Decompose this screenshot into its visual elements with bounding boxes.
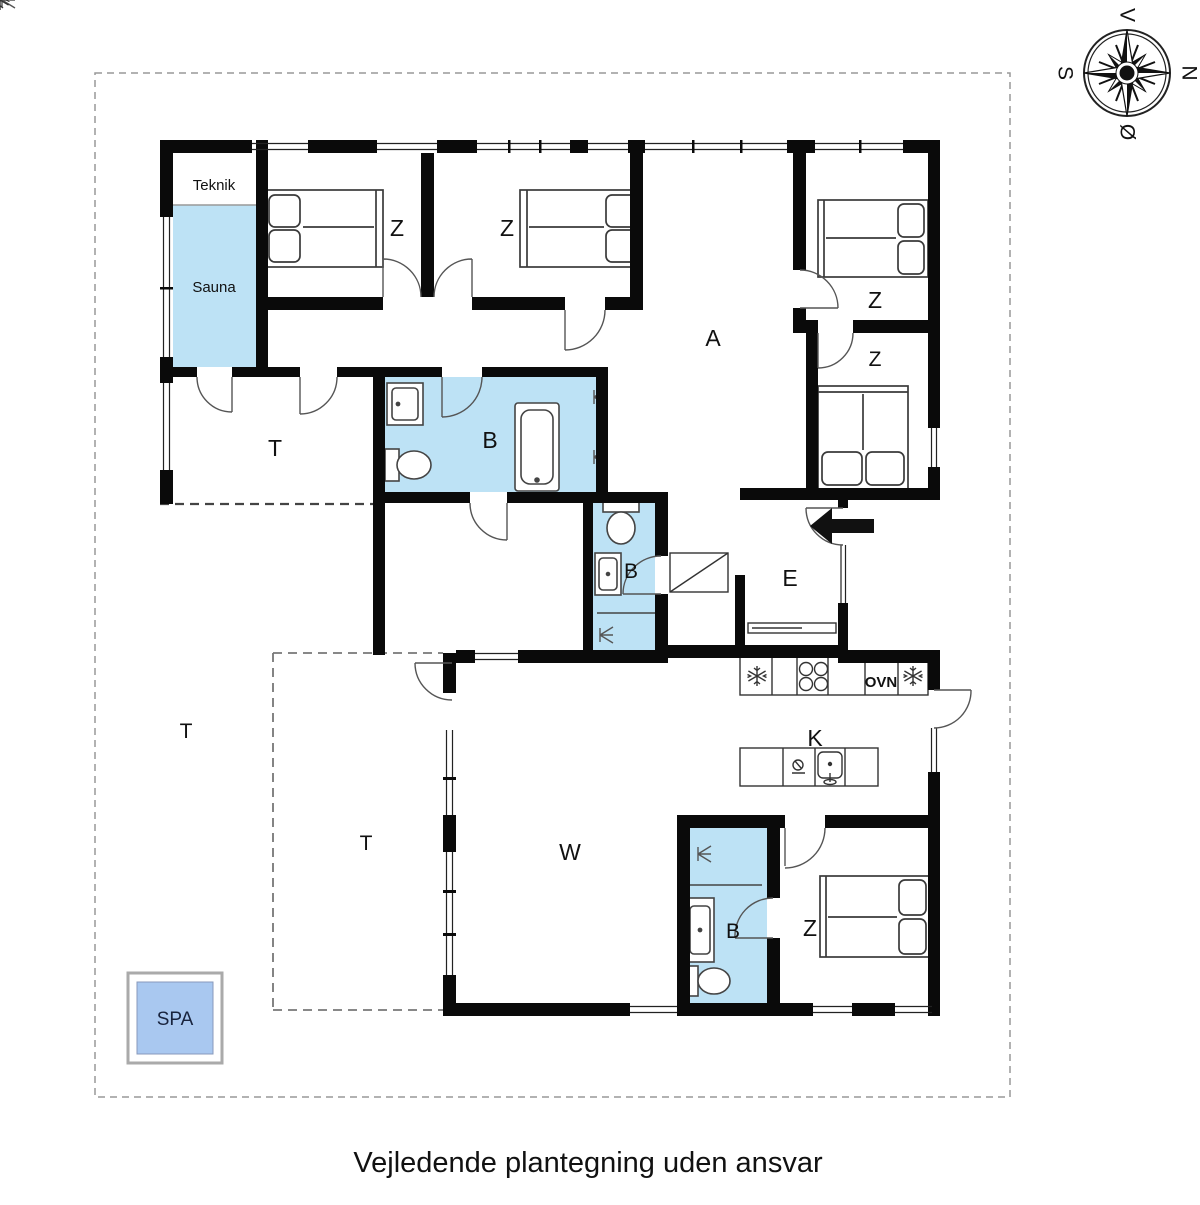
- spa: SPA: [128, 973, 222, 1063]
- bedroom-3-label: Z: [868, 287, 882, 313]
- plan-caption: Vejledende plantegning uden ansvar: [353, 1147, 823, 1179]
- compass-east-label: Ø: [1116, 124, 1139, 140]
- bedroom-5-door: [785, 828, 825, 868]
- sauna-label: Sauna: [192, 279, 236, 296]
- bathroom-1-bathtub: [515, 403, 559, 491]
- compass-rose: V N Ø S: [1054, 8, 1200, 140]
- bathroom-3-toilet: [686, 966, 730, 996]
- closet: [670, 553, 728, 592]
- kitchen-terrace-door: [934, 690, 971, 728]
- indoor-terrace-label: T: [268, 435, 282, 461]
- compass-west-label: V: [1116, 8, 1139, 22]
- bed-z4: [818, 386, 908, 489]
- bedroom-5-label: Z: [803, 915, 817, 941]
- bathroom-1-toilet: [385, 449, 431, 481]
- entrance-arrow-icon: [810, 508, 874, 544]
- bedroom-1-door: [383, 259, 421, 297]
- room-labels: Teknik Sauna Z Z Z Z Z A T T T B B B E K…: [180, 177, 898, 943]
- compass-south-label: S: [1054, 66, 1077, 80]
- bathroom-2-label: B: [624, 560, 638, 583]
- bed-z1: [265, 190, 383, 267]
- kitchen-label: K: [807, 725, 823, 751]
- entry-bench: [748, 623, 836, 633]
- entrance-label: E: [782, 565, 797, 591]
- bathroom-3-label: B: [726, 920, 740, 943]
- bed-z3: [818, 200, 928, 277]
- bedroom-4-label: Z: [869, 348, 882, 371]
- bed-z5: [820, 876, 930, 957]
- bathroom-1-south-door: [470, 503, 507, 540]
- terrace-boundaries: [160, 504, 443, 1010]
- bathroom-2-sink: [595, 553, 621, 595]
- spa-label: SPA: [157, 1009, 194, 1030]
- teknik-label: Teknik: [193, 177, 236, 194]
- hallway-label: A: [705, 325, 721, 351]
- floor-plan-page: SPA Teknik Sauna Z Z Z Z Z A T T T B B B…: [0, 0, 1200, 1200]
- bedroom-2-door: [434, 259, 472, 297]
- floor-plan-svg: SPA Teknik Sauna Z Z Z Z Z A T T T B B B…: [0, 0, 1200, 1200]
- bedroom-1-label: Z: [390, 215, 404, 241]
- bathroom-1-sink: [387, 383, 423, 425]
- kitchen-island: [740, 748, 878, 786]
- bed-z2: [520, 190, 638, 267]
- bathroom-3-sink: [686, 898, 714, 962]
- oven-label: OVN: [865, 674, 898, 691]
- outdoor-terrace-label: T: [360, 832, 373, 855]
- outdoor-terrace-outline: [273, 653, 443, 1010]
- compass-north-label: N: [1178, 65, 1200, 80]
- bedroom-2-label: Z: [500, 215, 514, 241]
- bathroom-1-label: B: [482, 427, 497, 453]
- hall-door: [565, 310, 605, 350]
- terrace-room-door: [300, 377, 337, 414]
- living-room-label: W: [559, 839, 581, 865]
- sauna-door: [197, 377, 232, 412]
- garden-terrace-label: T: [180, 720, 193, 743]
- bedroom-4-door: [818, 333, 853, 368]
